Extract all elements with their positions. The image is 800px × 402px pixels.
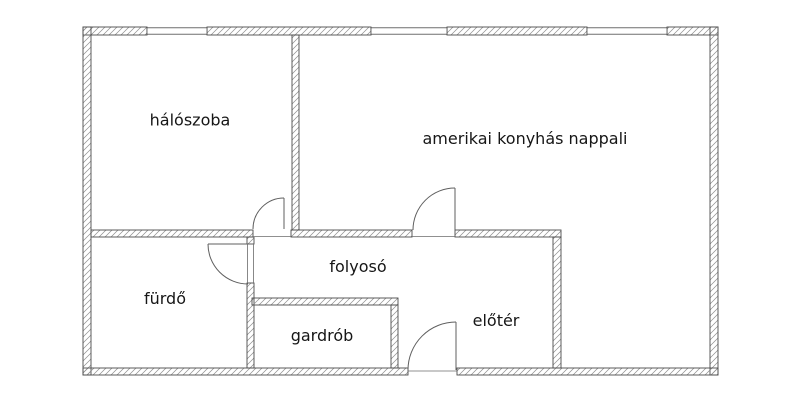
room-label-nappali: amerikai konyhás nappali xyxy=(423,129,628,148)
wall-entry-right xyxy=(553,237,561,368)
floor-plan: hálószoba amerikai konyhás nappali fürdő… xyxy=(0,0,800,402)
outer-wall-bottom-seg2 xyxy=(457,368,718,375)
wall-wardrobe-right xyxy=(391,305,398,368)
outer-wall-right xyxy=(710,27,718,375)
room-label-haloszoba: hálószoba xyxy=(150,111,231,130)
floor-plan-canvas: hálószoba amerikai konyhás nappali fürdő… xyxy=(0,0,800,402)
wall-mid-seg1 xyxy=(91,230,253,237)
room-label-eloter: előtér xyxy=(473,311,520,330)
wall-bathroom-right xyxy=(247,283,254,368)
bedroom-door-icon xyxy=(253,198,284,229)
wall-mid-seg3 xyxy=(455,230,561,237)
outer-wall-top-seg2 xyxy=(207,27,371,35)
outer-walls xyxy=(83,27,718,375)
outer-wall-top-seg1 xyxy=(83,27,147,35)
outer-wall-top-seg3 xyxy=(447,27,587,35)
living-room-door-icon xyxy=(413,188,455,230)
bathroom-door-jambs xyxy=(247,244,253,283)
room-label-furdo: fürdő xyxy=(144,289,186,308)
wall-mid-seg2 xyxy=(291,230,412,237)
wall-wardrobe-top xyxy=(252,298,398,305)
wall-bathroom-stub xyxy=(247,237,254,244)
entrance-door-icon xyxy=(408,322,456,370)
outer-wall-left xyxy=(83,27,91,375)
outer-wall-bottom-seg1 xyxy=(83,368,408,375)
room-label-folyoso: folyosó xyxy=(329,257,386,276)
window-1-icon xyxy=(147,28,207,34)
room-label-gardrob: gardrób xyxy=(291,326,354,345)
wall-bedroom-living xyxy=(292,35,299,230)
window-2-icon xyxy=(371,28,447,34)
bathroom-door-icon xyxy=(208,244,248,284)
window-3-icon xyxy=(587,28,667,34)
